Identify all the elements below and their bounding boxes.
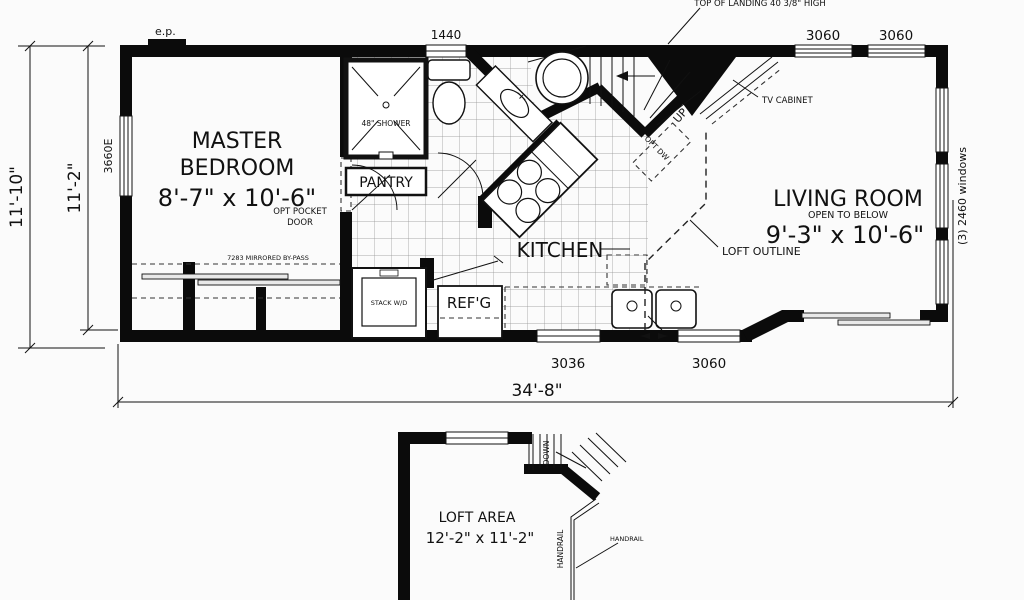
window-3036-label: 3036 <box>551 356 585 372</box>
handrail-rail-label: HANDRAIL <box>556 529 565 568</box>
living-room-subtitle: OPEN TO BELOW <box>808 210 889 221</box>
dim-11-2-label: 11'-2" <box>65 162 85 213</box>
kitchen-label: KITCHEN <box>517 238 604 262</box>
sliding-glass-door <box>802 313 930 325</box>
mirrored-bypass-label: 7283 MIRRORED BY-PASS <box>227 254 309 262</box>
window-3060-top2-label: 3060 <box>879 28 913 44</box>
handrail-callout-label: HANDRAIL <box>610 535 644 543</box>
loft-handrail <box>571 499 618 600</box>
loft-area-size: 12'-2" x 11'-2" <box>426 529 535 547</box>
loft-plan: DOWN HANDRAIL HANDRAIL LOFT AREA 12'-2" … <box>398 432 644 600</box>
opt-pocket-door-label-2: DOOR <box>287 218 313 228</box>
window-1440-label: 1440 <box>431 28 462 42</box>
window-3660E <box>120 116 132 196</box>
closet-bypass-doors <box>132 264 340 298</box>
master-bedroom-label-2: BEDROOM <box>180 156 295 181</box>
shower <box>346 60 426 159</box>
window-3060-bottom <box>678 330 740 342</box>
window-3060-top-2 <box>868 45 925 57</box>
window-3036 <box>537 330 600 342</box>
floor-plan-page: e.p. TOP OF LANDING 40 3/8" HIGH 1440 30… <box>0 0 1024 600</box>
window-3060-bottom-label: 3060 <box>692 356 726 372</box>
window-3660E-label: 3660E <box>102 138 115 173</box>
shower-label: 48" SHOWER <box>361 119 410 128</box>
living-room-label: LIVING ROOM <box>773 187 923 212</box>
tv-cabinet-label: TV CABINET <box>761 96 814 106</box>
down-label: DOWN <box>542 441 551 466</box>
refg-label: REF'G <box>447 294 491 312</box>
window-3060-top-1 <box>795 45 852 57</box>
opt-pocket-door-label-1: OPT POCKET <box>273 207 327 217</box>
window-3060-top1-label: 3060 <box>806 28 840 44</box>
dim-34-8-label: 34'-8" <box>511 381 562 401</box>
master-bedroom-label-1: MASTER <box>192 129 283 154</box>
loft-window <box>446 432 508 444</box>
stack-wd-label: STACK W/D <box>371 299 407 307</box>
windows-2460-label: (3) 2460 windows <box>956 147 969 245</box>
landing-leader <box>668 8 700 44</box>
dim-11-10-label: 11'-10" <box>7 166 27 228</box>
loft-area-label: LOFT AREA <box>439 510 516 526</box>
living-room-size: 9'-3" x 10'-6" <box>766 221 924 249</box>
windows-2460-right <box>936 88 948 304</box>
window-1440 <box>426 45 466 57</box>
floor-plan-drawing: e.p. TOP OF LANDING 40 3/8" HIGH 1440 30… <box>0 0 1024 600</box>
landing-label: TOP OF LANDING 40 3/8" HIGH <box>693 0 825 9</box>
pantry-label: PANTRY <box>359 175 413 191</box>
ep-label: e.p. <box>155 25 176 38</box>
